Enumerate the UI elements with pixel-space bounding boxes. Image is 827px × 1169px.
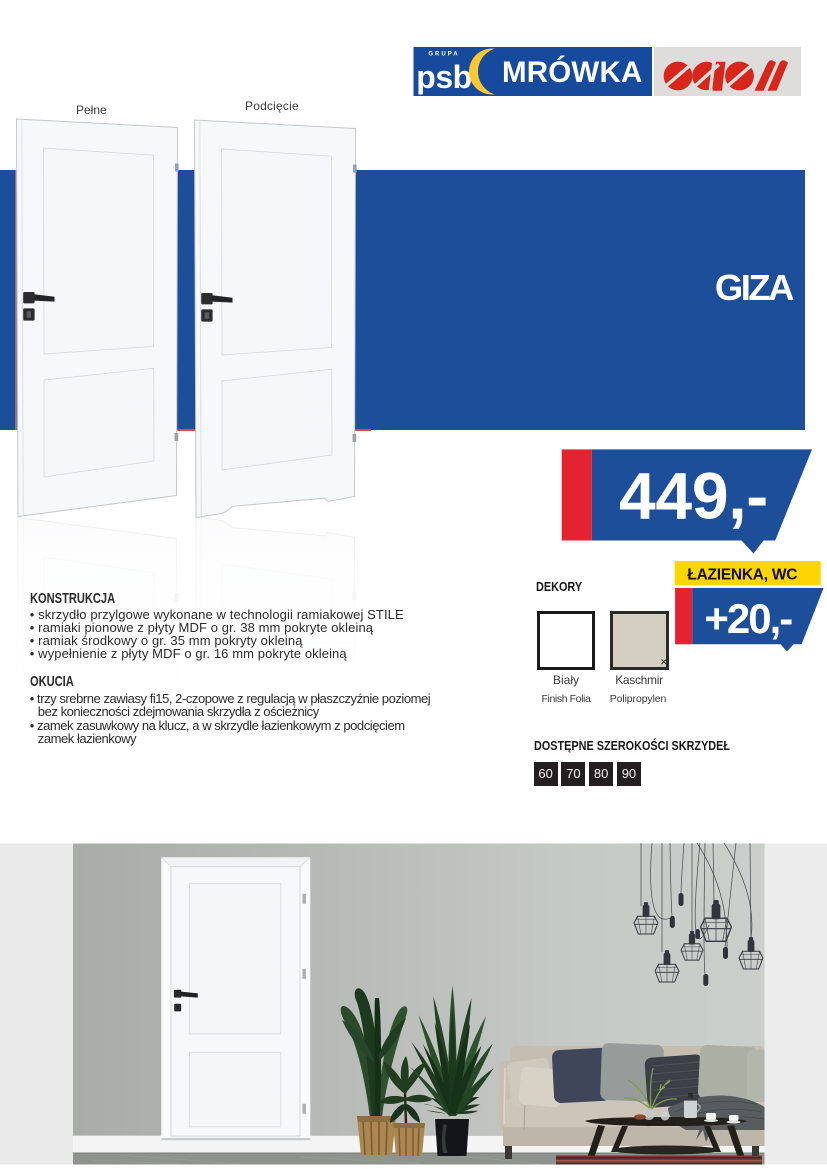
svg-text:ŁAZIENKA, WC: ŁAZIENKA, WC <box>687 566 797 583</box>
svg-text:+20,-: +20,- <box>704 595 792 642</box>
svg-text:449,-: 449,- <box>619 459 768 533</box>
svg-text:MRÓWKA: MRÓWKA <box>502 55 642 89</box>
svg-text:GRUPA: GRUPA <box>428 52 459 58</box>
svg-text:psb: psb <box>416 59 471 95</box>
